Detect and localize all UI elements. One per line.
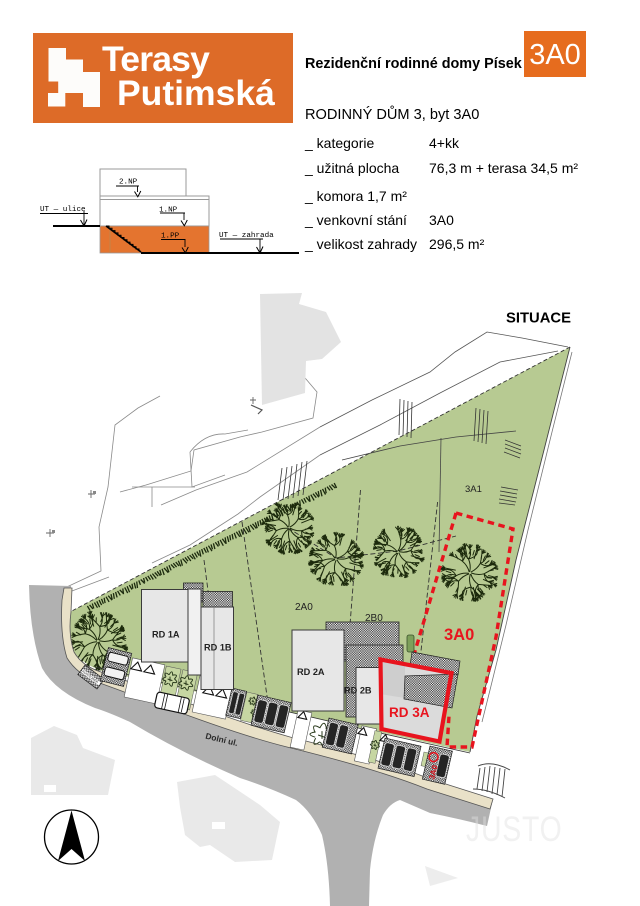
svg-text:RD 1A: RD 1A — [152, 630, 180, 640]
svg-text:2.NP: 2.NP — [119, 179, 138, 187]
svg-text:RD 2A: RD 2A — [297, 667, 325, 677]
svg-text:RD 2B: RD 2B — [344, 686, 372, 696]
svg-text:3A1: 3A1 — [465, 484, 482, 495]
svg-text:SITUACE: SITUACE — [506, 311, 571, 327]
svg-text:RD 3A: RD 3A — [389, 705, 430, 720]
svg-text:2A0: 2A0 — [295, 602, 313, 613]
svg-text:RD 1B: RD 1B — [204, 643, 232, 653]
svg-text:UT — zahrada: UT — zahrada — [219, 232, 274, 240]
svg-text:JUSTO: JUSTO — [466, 809, 563, 849]
svg-text:UT — ulice: UT — ulice — [40, 206, 86, 214]
svg-text:3A0: 3A0 — [444, 626, 474, 644]
